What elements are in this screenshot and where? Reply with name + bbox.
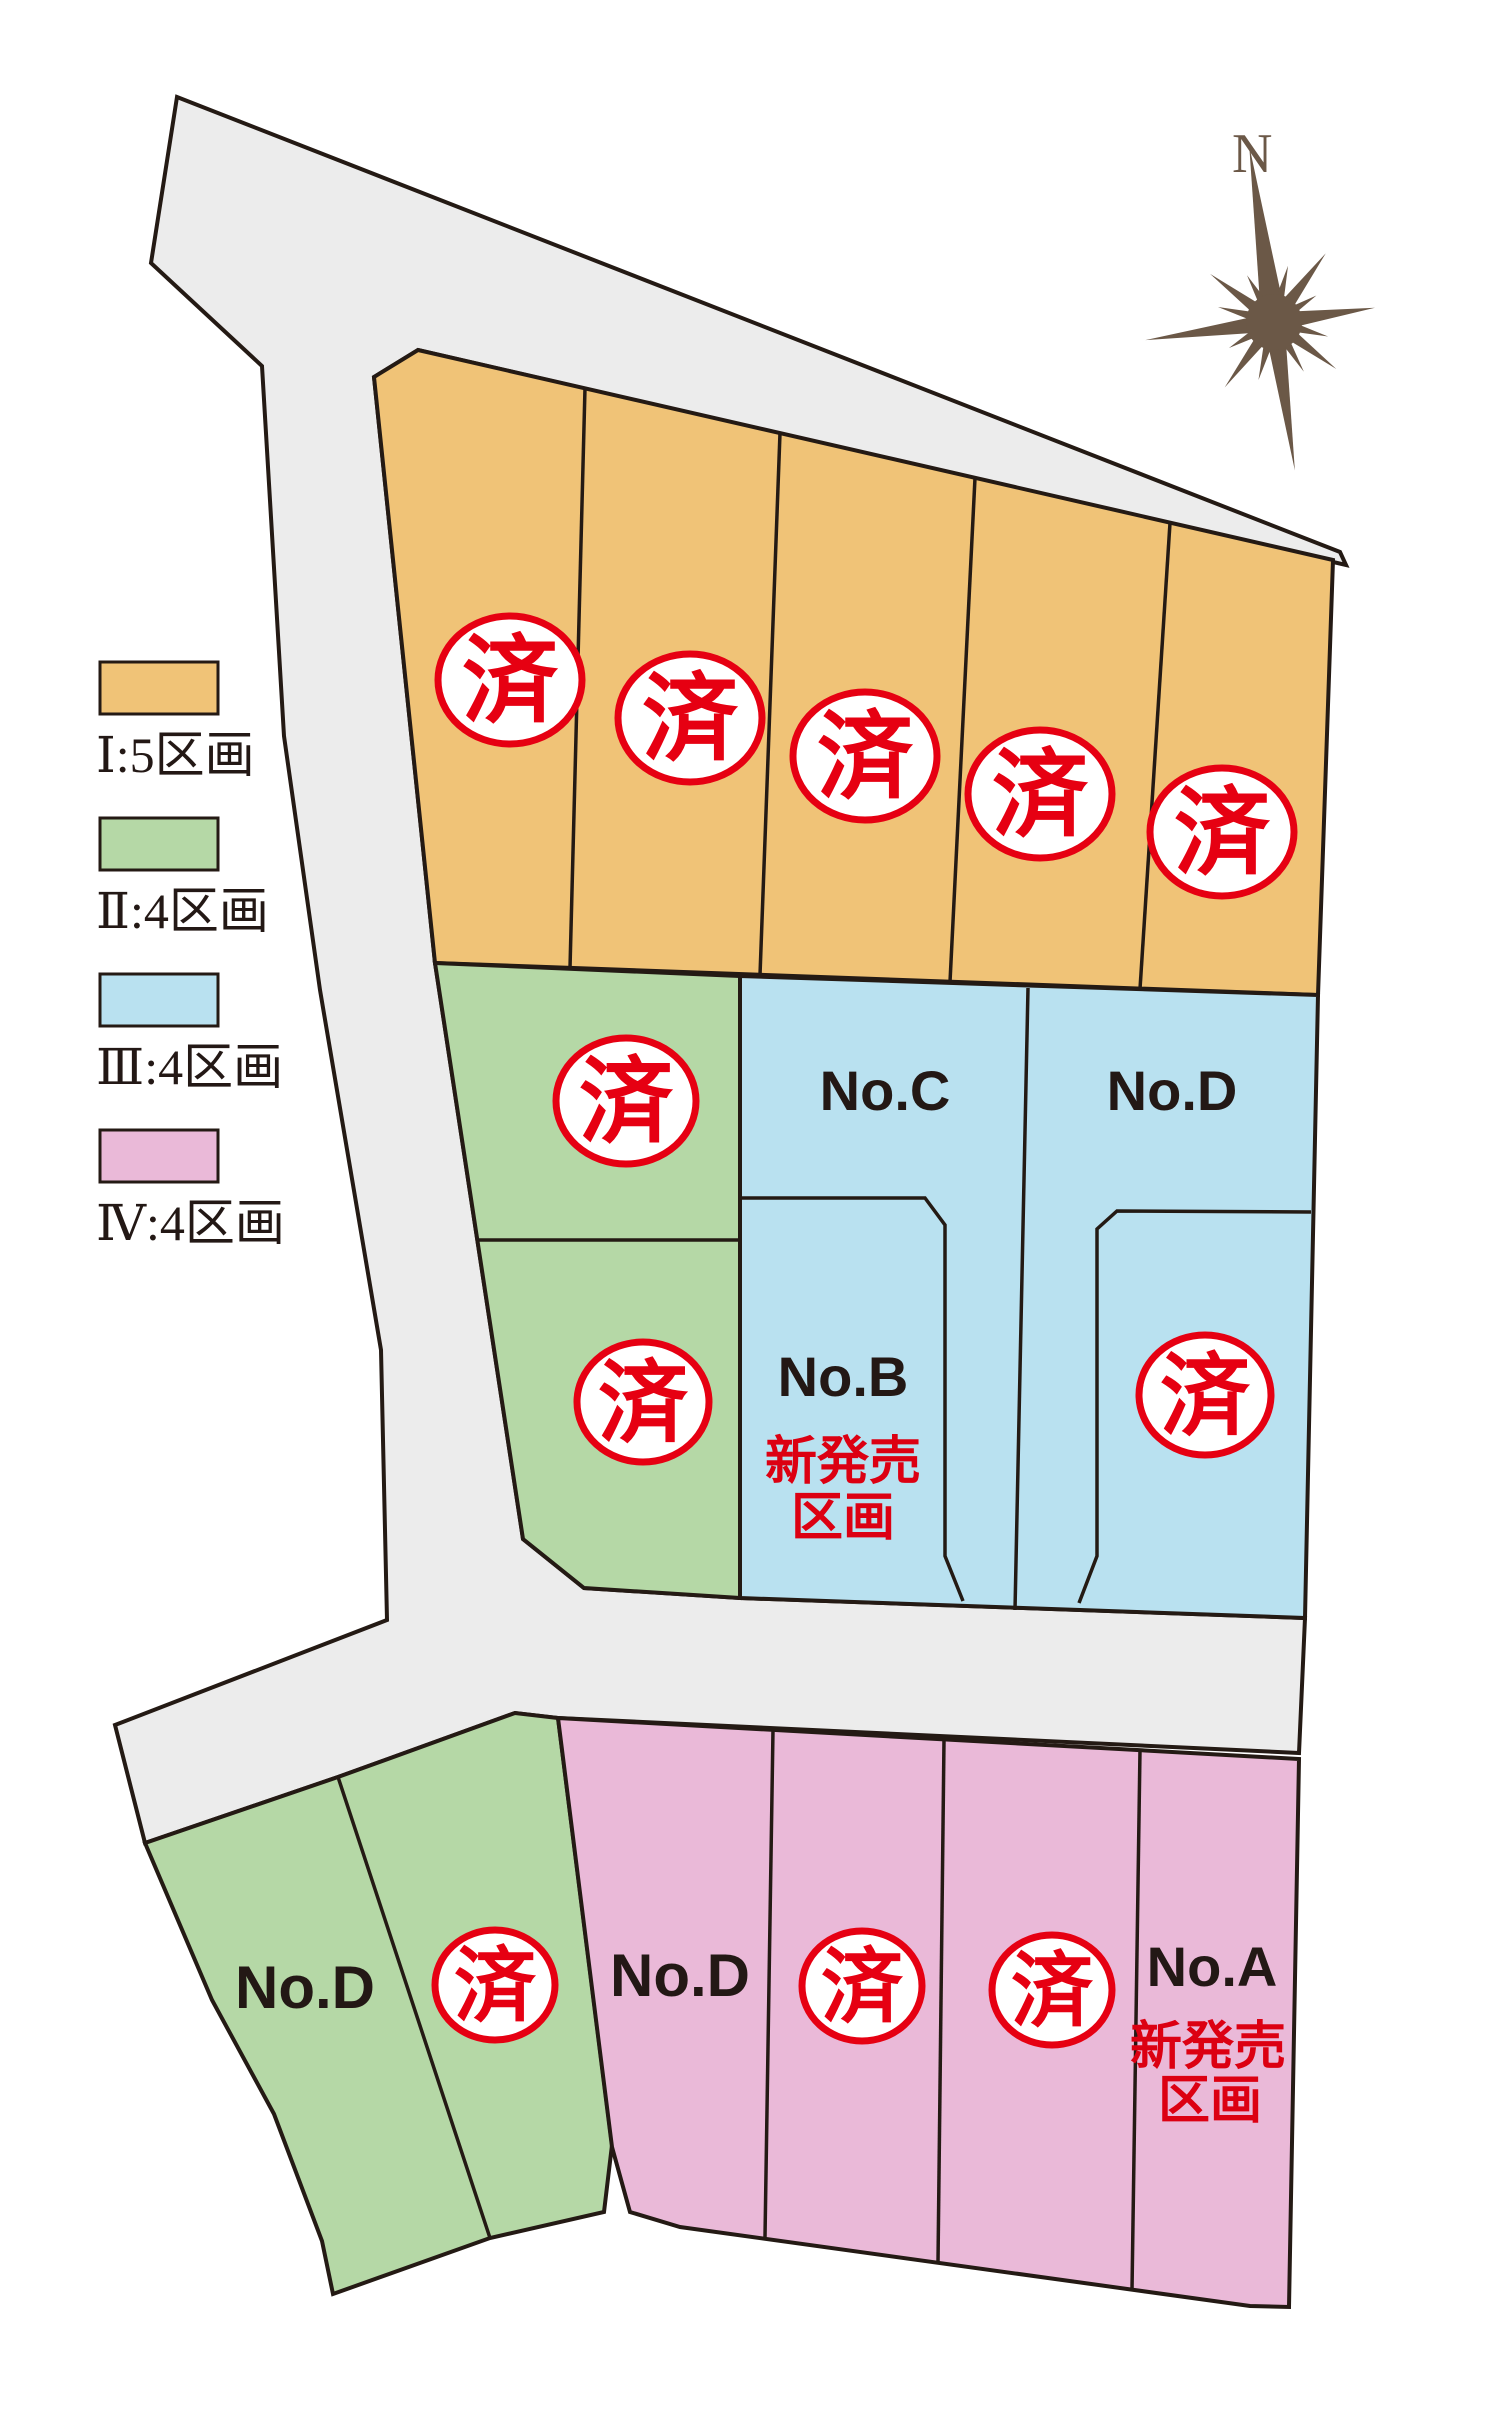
sold-stamp-text: 済 <box>992 742 1089 849</box>
lot-map-page: No.C No.D No.B 新発売 区画 No.D No.D No.A 新発売… <box>0 0 1500 2425</box>
legend-swatch-phase2 <box>100 818 218 870</box>
legend-item-label: Ⅲ:4区画 <box>96 1039 283 1095</box>
new-release-label-line2: 区画 <box>1158 2072 1262 2130</box>
sold-stamp-text: 済 <box>642 666 739 773</box>
new-release-label-line1: 新発売 <box>1130 2018 1286 2076</box>
sold-stamp-text: 済 <box>817 704 914 811</box>
sold-stamp: 済 <box>802 1931 922 2041</box>
plot-label-no-d-pink: No.D <box>610 1942 750 2009</box>
sold-stamp: 済 <box>968 730 1112 858</box>
compass: N <box>1120 123 1395 489</box>
legend-swatch-phase1 <box>100 662 218 714</box>
sold-stamp: 済 <box>556 1038 696 1164</box>
sold-stamp-text: 済 <box>598 1354 689 1454</box>
sold-stamp-text: 済 <box>1160 1347 1251 1447</box>
new-release-label-line1: 新発売 <box>765 1433 921 1491</box>
plot-label-no-d-green: No.D <box>235 1954 375 2021</box>
sold-stamp-text: 済 <box>821 1942 904 2033</box>
sold-stamp: 済 <box>992 1935 1112 2045</box>
plot-label-no-c: No.C <box>820 1059 951 1122</box>
sold-stamp-text: 済 <box>1011 1946 1094 2037</box>
plot-label-no-d-blue: No.D <box>1107 1059 1238 1122</box>
legend-item-label: Ⅳ:4区画 <box>96 1195 285 1251</box>
legend-swatch-phase4 <box>100 1130 218 1182</box>
lot-map-svg: No.C No.D No.B 新発売 区画 No.D No.D No.A 新発売… <box>0 0 1500 2425</box>
legend-item-label: Ⅱ:4区画 <box>96 883 269 939</box>
legend: Ⅰ:5区画 Ⅱ:4区画 Ⅲ:4区画 Ⅳ:4区画 <box>96 662 285 1251</box>
new-release-label-line2: 区画 <box>791 1489 895 1547</box>
sold-stamp: 済 <box>1150 768 1294 896</box>
sold-stamp-text: 済 <box>579 1049 674 1154</box>
sold-stamp: 済 <box>435 1930 555 2040</box>
plot-label-no-a: No.A <box>1147 1935 1278 1998</box>
sold-stamp: 済 <box>1139 1335 1271 1455</box>
sold-stamp: 済 <box>793 692 937 820</box>
section-phase4-pink <box>558 1718 1299 2307</box>
legend-swatch-phase3 <box>100 974 218 1026</box>
sold-stamp: 済 <box>577 1342 709 1462</box>
compass-star <box>1120 132 1395 489</box>
sold-stamp: 済 <box>618 654 762 782</box>
sold-stamp: 済 <box>438 616 582 744</box>
legend-item-label: Ⅰ:5区画 <box>96 727 255 783</box>
plot-label-no-b: No.B <box>778 1345 909 1408</box>
sold-stamp-text: 済 <box>454 1941 537 2032</box>
sold-stamp-text: 済 <box>1174 780 1271 887</box>
sold-stamp-text: 済 <box>462 628 559 735</box>
